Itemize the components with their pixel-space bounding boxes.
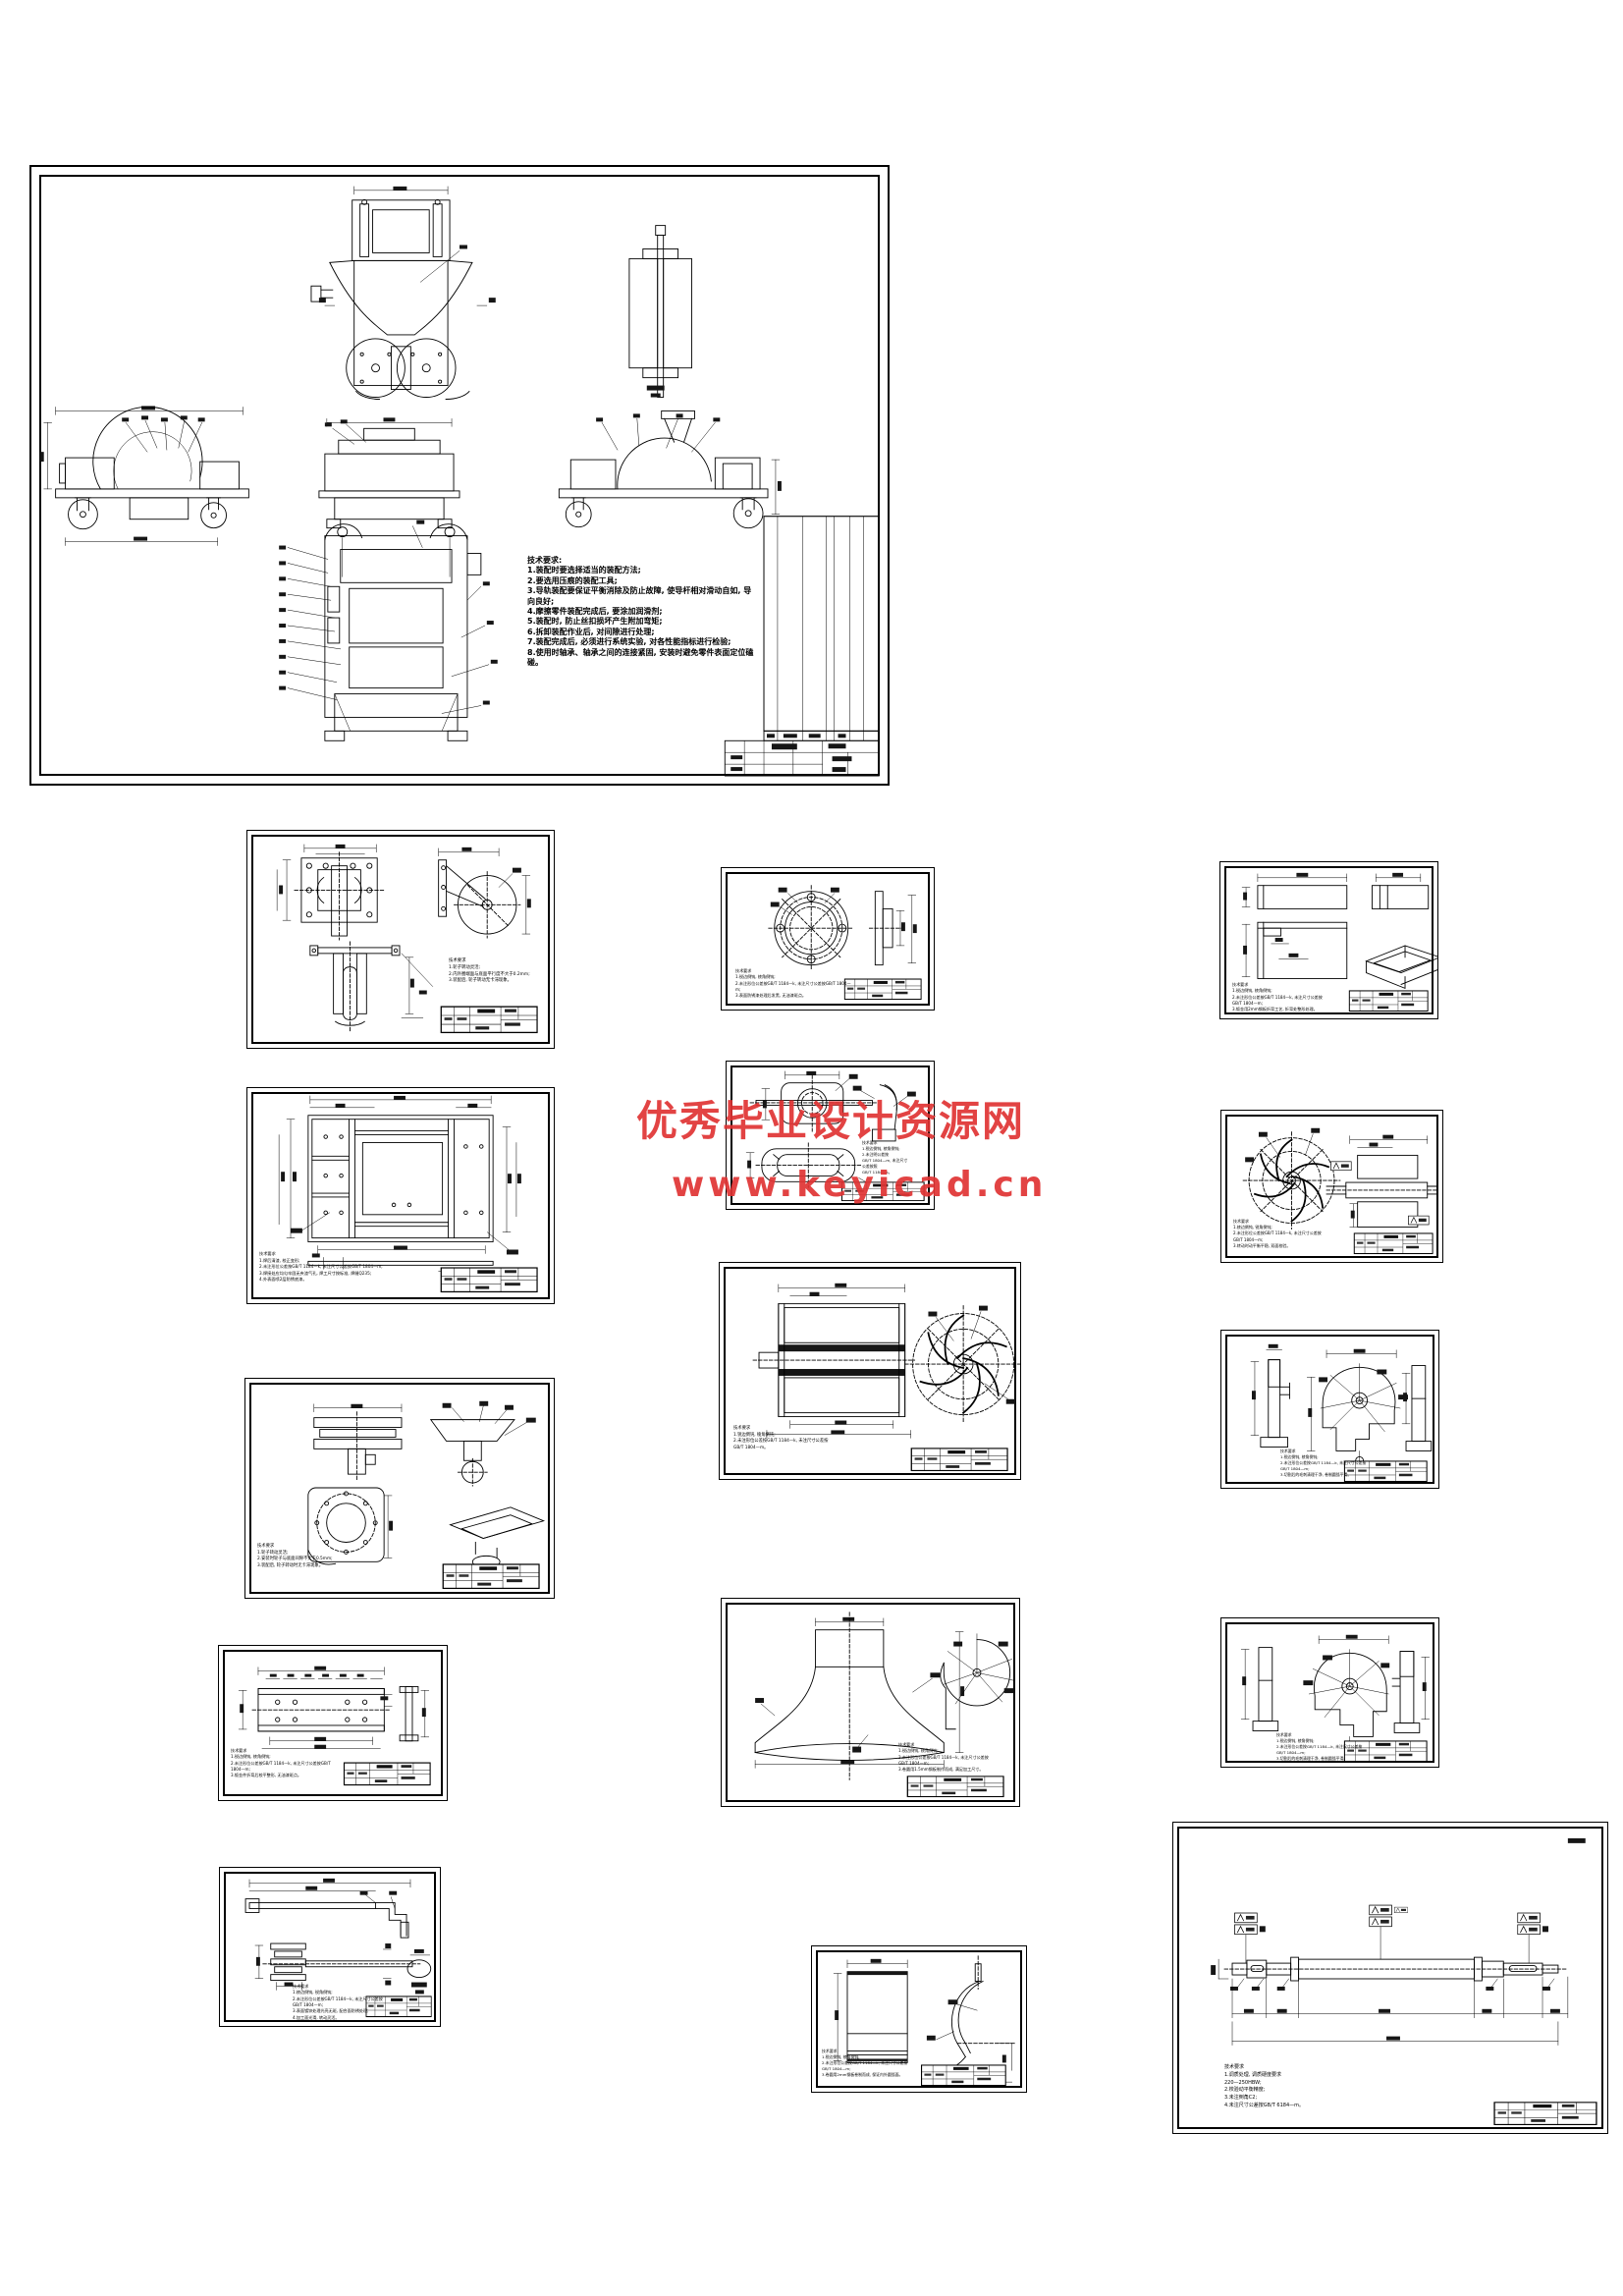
sheet-main-assembly: 技术要求: 1.装配时要选择适当的装配方法; 2.要选用压痕的装配工具; 3.导… <box>29 165 890 786</box>
volute2-notes: 技术要求 1.锐边倒钝, 棱角倒钝; 2.未注形位公差按GB/T 1184—k,… <box>1276 1732 1379 1762</box>
rotor-notes: 技术要求 1.棱边倒钝, 锐角倒钝; 2.未注形位公差按GB/T 1184—k,… <box>1233 1219 1343 1249</box>
main-left-view <box>40 406 249 545</box>
impeller-notes: 技术要求 1.锐边倒钝, 棱角倒钝; 2.未注形位公差按GB/T 1184—k,… <box>733 1426 900 1452</box>
caster-notes: 技术要求 1.轮子转动灵活; 2.内外圈端面与底面平行度不大于0.2mm; 3.… <box>449 958 547 985</box>
watermark-line1: 优秀毕业设计资源网 <box>636 1088 1025 1148</box>
sheet-flange: 技术要求 1.锐边倒钝, 棱角倒钝; 2.未注形位公差按GB/T 1184—k,… <box>721 867 935 1011</box>
lever-notes: 技术要求 1.棱边倒钝, 锐角倒钝; 2.未注形位公差按GB/T 1184—k,… <box>293 1984 391 2021</box>
sheet-volute-side-1: 技术要求 1.锐边倒钝, 棱角倒钝; 2.未注形位公差按GB/T 1184—k,… <box>1220 1330 1439 1489</box>
watermark-line2: www.keyicad.cn <box>672 1165 1047 1205</box>
main-front-view <box>319 417 460 527</box>
funnel-graphic <box>722 1599 1019 1806</box>
sheet-shaft: 技术要求 1.调质处理, 调质硬度要求 220—250HBW; 2.校验动平衡精… <box>1172 1822 1608 2134</box>
sheet-volute-side-2: 技术要求 1.锐边倒钝, 棱角倒钝; 2.未注形位公差按GB/T 1184—k,… <box>1220 1617 1439 1768</box>
drawings-page: 技术要求: 1.装配时要选择适当的装配方法; 2.要选用压痕的装配工具; 3.导… <box>0 0 1623 2296</box>
main-top-view <box>311 187 496 400</box>
main-notes: 技术要求: 1.装配时要选择适当的装配方法; 2.要选用压痕的装配工具; 3.导… <box>527 556 758 668</box>
curved-notes: 技术要求 1.锐边倒钝, 棱角倒钝; 2.未注形位公差按GB/T 1184—k,… <box>822 2049 920 2078</box>
sheet-frame: 技术要求 1.焊后清渣, 校正变形; 2.未注形位公差按GB/T 1184—k,… <box>246 1087 555 1304</box>
sheet-impeller: 技术要求 1.锐边倒钝, 棱角倒钝; 2.未注形位公差按GB/T 1184—k,… <box>719 1262 1021 1480</box>
sheet-curved: 技术要求 1.锐边倒钝, 棱角倒钝; 2.未注形位公差按GB/T 1184—k,… <box>811 1945 1027 2093</box>
pulley-notes: 技术要求 1.轮子转动灵活; 2.安装时轮子与底面间隙不大于0.5mm; 3.装… <box>257 1544 414 1570</box>
flange-notes: 技术要求 1.锐边倒钝, 棱角倒钝; 2.未注形位公差按GB/T 1184—k,… <box>735 968 853 1000</box>
sheet-funnel: 技术要求 1.锐边倒钝, 棱角倒钝; 2.未注形位公差按GB/T 1184—k,… <box>721 1598 1020 1807</box>
sheet-lever: 技术要求 1.棱边倒钝, 锐角倒钝; 2.未注形位公差按GB/T 1184—k,… <box>219 1867 441 2027</box>
caster-graphic <box>247 831 554 1048</box>
frame-notes: 技术要求 1.焊后清渣, 校正变形; 2.未注形位公差按GB/T 1184—k,… <box>259 1251 436 1284</box>
main-bottom-view <box>279 520 498 741</box>
main-right-view <box>559 410 782 527</box>
shaft-notes: 技术要求 1.调质处理, 调质硬度要求 220—250HBW; 2.校验动平衡精… <box>1224 2064 1401 2110</box>
sheet-pulley: 技术要求 1.轮子转动灵活; 2.安装时轮子与底面间隙不大于0.5mm; 3.装… <box>244 1378 555 1599</box>
sheet-plate: 技术要求 1.锐边倒钝, 棱角倒钝; 2.未注形位公差按GB/T 1184—k,… <box>218 1645 448 1801</box>
main-assembly-graphic <box>31 167 888 784</box>
volute1-notes: 技术要求 1.锐边倒钝, 棱角倒钝; 2.未注形位公差按GB/T 1184—k,… <box>1280 1449 1382 1478</box>
plate-notes: 技术要求 1.锐边倒钝, 棱角倒钝; 2.未注形位公差按GB/T 1184—k,… <box>231 1748 341 1779</box>
tray-notes: 技术要求 1.锐边倒钝, 棱角倒钝; 2.未注形位公差按GB/T 1184—k,… <box>1232 982 1346 1013</box>
funnel-notes: 技术要求 1.锐边倒钝, 棱角倒钝; 2.未注形位公差按GB/T 1184—k,… <box>898 1742 1008 1774</box>
sheet-caster: 技术要求 1.轮子转动灵活; 2.内外圈端面与底面平行度不大于0.2mm; 3.… <box>246 830 555 1049</box>
sheet-rotor: 技术要求 1.棱边倒钝, 锐角倒钝; 2.未注形位公差按GB/T 1184—k,… <box>1220 1110 1443 1263</box>
main-section-aa <box>629 226 692 398</box>
sheet-tray: 技术要求 1.锐边倒钝, 棱角倒钝; 2.未注形位公差按GB/T 1184—k,… <box>1219 861 1438 1019</box>
